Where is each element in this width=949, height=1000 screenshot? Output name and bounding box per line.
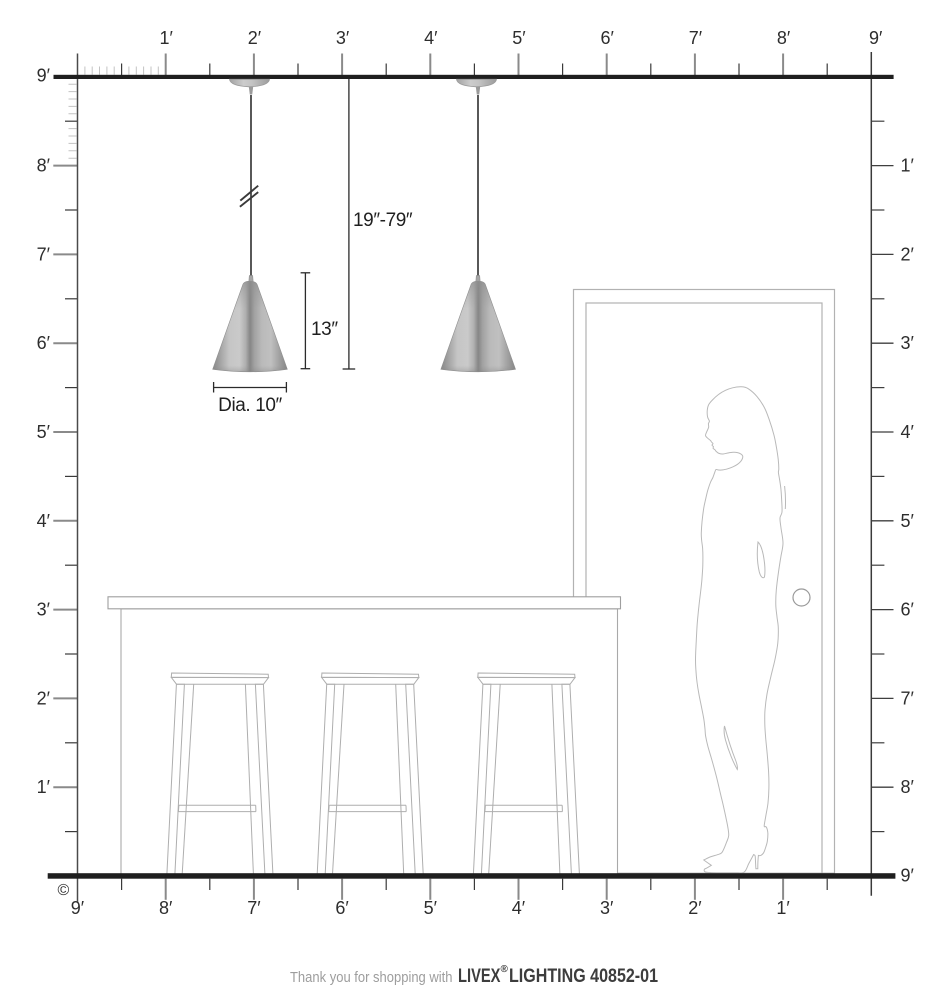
svg-text:7′: 7′	[37, 244, 51, 264]
svg-text:5′: 5′	[512, 28, 526, 48]
svg-text:1′: 1′	[901, 156, 915, 176]
svg-text:®: ®	[501, 964, 509, 975]
svg-text:3′: 3′	[600, 898, 614, 918]
svg-text:9′: 9′	[869, 28, 883, 48]
svg-text:8′: 8′	[777, 28, 791, 48]
svg-text:8′: 8′	[901, 777, 915, 797]
svg-text:2′: 2′	[248, 28, 262, 48]
svg-text:5′: 5′	[37, 422, 51, 442]
svg-text:6′: 6′	[37, 333, 51, 353]
svg-text:LIVEX: LIVEX	[458, 965, 501, 987]
svg-text:6′: 6′	[901, 600, 915, 620]
svg-text:5′: 5′	[424, 898, 438, 918]
svg-text:1′: 1′	[160, 28, 174, 48]
svg-text:3′: 3′	[901, 333, 915, 353]
svg-text:7′: 7′	[689, 28, 703, 48]
svg-text:5′: 5′	[901, 511, 915, 531]
svg-text:6′: 6′	[601, 28, 615, 48]
svg-text:1′: 1′	[37, 777, 51, 797]
svg-text:3′: 3′	[37, 600, 51, 620]
svg-text:4′: 4′	[512, 898, 526, 918]
svg-text:3′: 3′	[336, 28, 350, 48]
svg-text:2′: 2′	[37, 688, 51, 708]
svg-text:Dia. 10″: Dia. 10″	[218, 395, 282, 416]
svg-text:19″-79″: 19″-79″	[353, 210, 413, 231]
svg-text:1′: 1′	[776, 898, 790, 918]
svg-text:Thank you for shopping with: Thank you for shopping with	[290, 970, 453, 986]
svg-text:8′: 8′	[159, 898, 173, 918]
svg-text:7′: 7′	[247, 898, 261, 918]
svg-text:9′: 9′	[901, 866, 915, 886]
svg-text:4′: 4′	[37, 511, 51, 531]
svg-text:8′: 8′	[37, 156, 51, 176]
svg-text:2′: 2′	[901, 244, 915, 264]
svg-text:4′: 4′	[424, 28, 438, 48]
svg-text:6′: 6′	[335, 898, 349, 918]
svg-text:LIGHTING 40852-01: LIGHTING 40852-01	[509, 965, 658, 987]
svg-text:13″: 13″	[311, 319, 338, 340]
svg-text:2′: 2′	[688, 898, 702, 918]
svg-text:©: ©	[58, 882, 70, 899]
svg-text:7′: 7′	[901, 688, 915, 708]
svg-text:9′: 9′	[37, 66, 51, 86]
svg-text:4′: 4′	[901, 422, 915, 442]
